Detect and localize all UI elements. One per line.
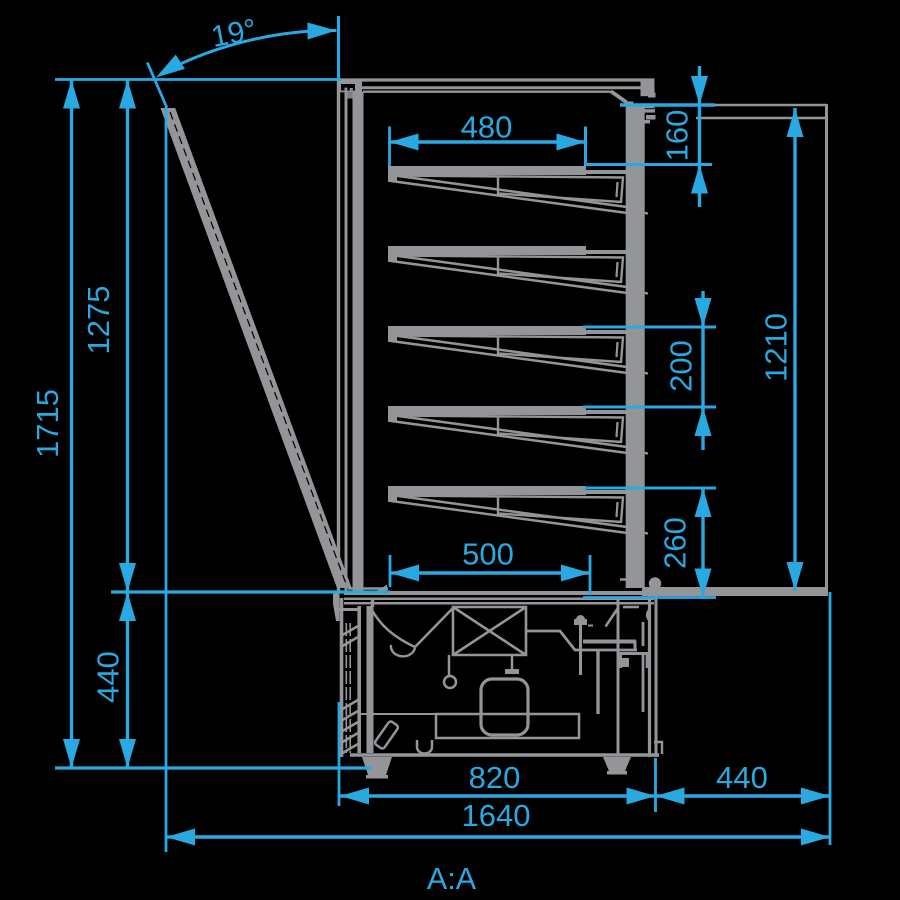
svg-text:160: 160	[660, 110, 695, 162]
svg-text:500: 500	[462, 537, 514, 572]
svg-text:A:A: A:A	[427, 862, 477, 896]
svg-text:440: 440	[91, 651, 126, 703]
svg-text:1640: 1640	[462, 798, 531, 833]
svg-text:1210: 1210	[759, 313, 794, 382]
svg-text:260: 260	[658, 517, 693, 569]
svg-text:1715: 1715	[30, 389, 65, 458]
svg-text:440: 440	[716, 760, 768, 795]
svg-text:480: 480	[461, 110, 513, 145]
svg-text:1275: 1275	[81, 286, 116, 355]
svg-text:820: 820	[469, 760, 521, 795]
svg-text:200: 200	[664, 340, 699, 392]
